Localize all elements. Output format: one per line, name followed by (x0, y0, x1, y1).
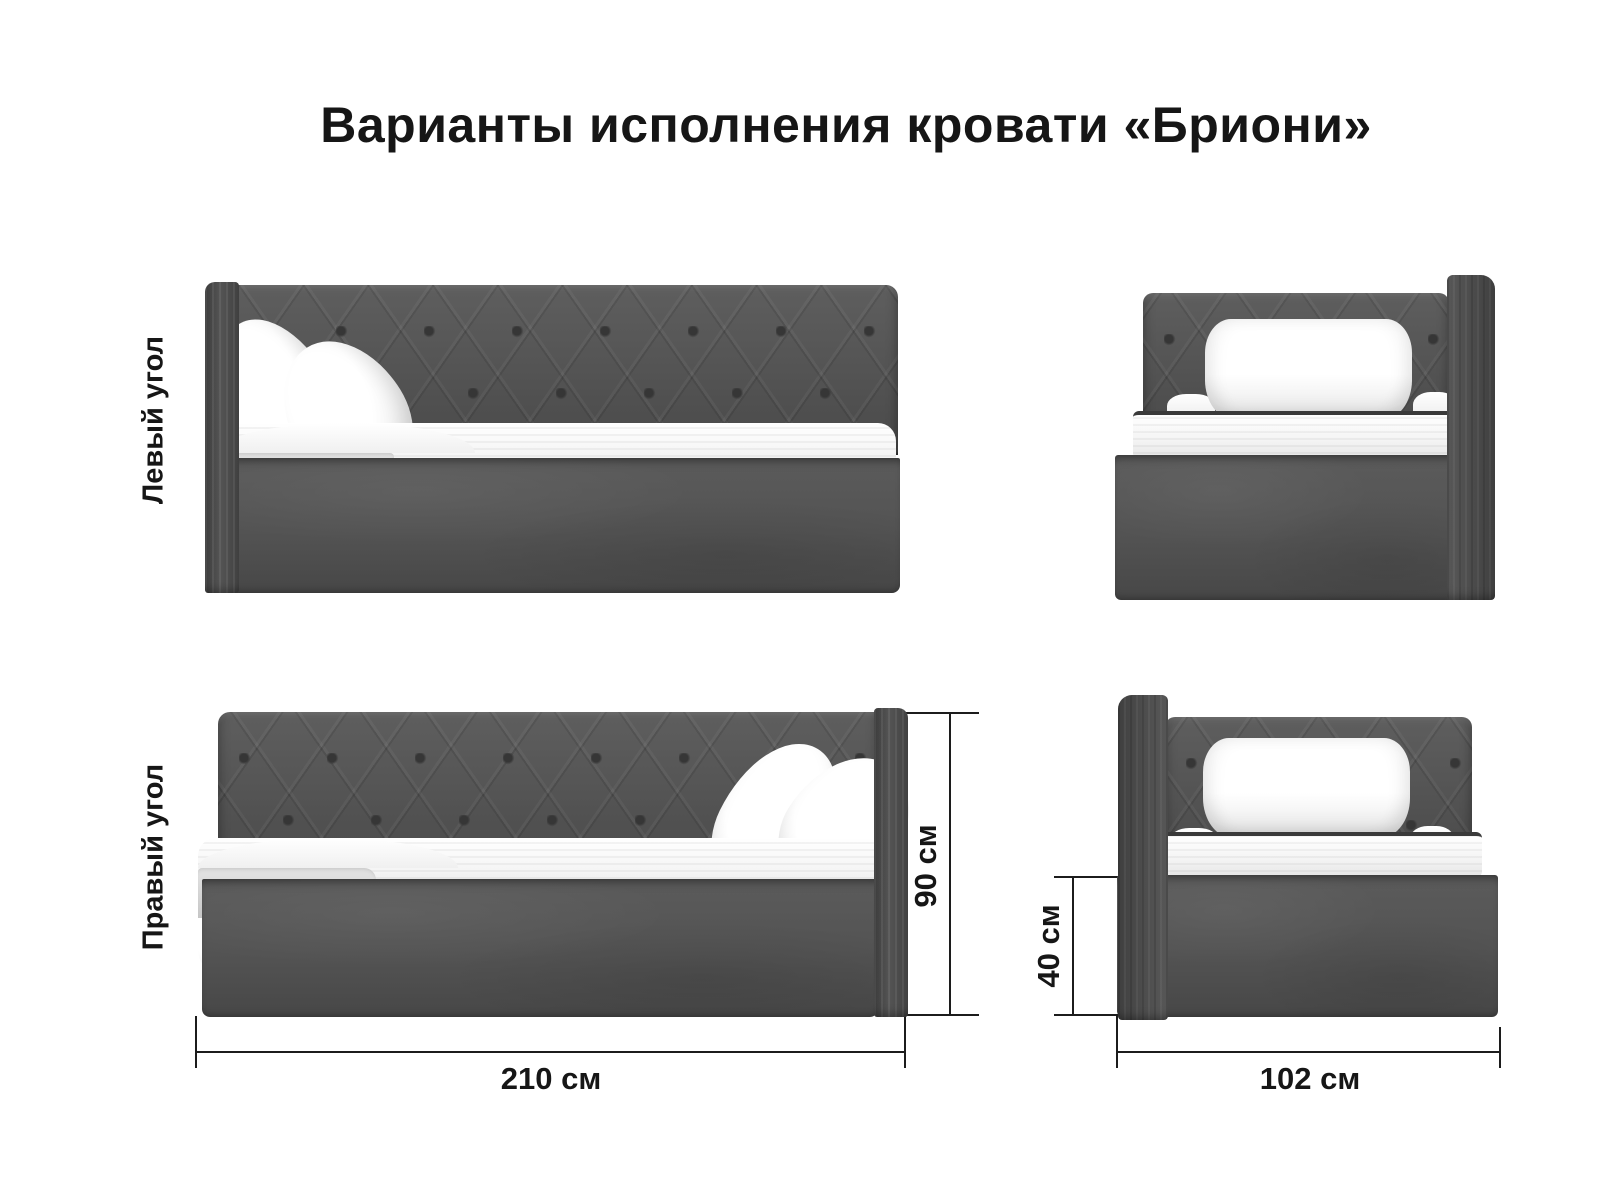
pillow (1205, 319, 1412, 420)
dimension-base-height-tick-top (1054, 876, 1118, 878)
page-title: Варианты исполнения кровати «Бриони» (92, 96, 1600, 154)
storage-base (202, 879, 878, 1017)
dimension-base-height-label: 40 см (1031, 904, 1067, 987)
product-diagram-canvas: Варианты исполнения кровати «Бриони» Лев… (0, 0, 1600, 1200)
dimension-base-height-line (1072, 877, 1074, 1016)
variant-label-left-corner: Левый угол (138, 336, 171, 504)
dimension-length-tick-right (904, 1016, 906, 1068)
variant-label-right-corner: Правый угол (138, 764, 171, 950)
corner-post (874, 708, 908, 1017)
corner-post (205, 282, 239, 593)
dimension-height-tick-top (905, 712, 979, 714)
dimension-width-tick-left (1116, 1016, 1118, 1068)
bed-view-left-corner-front (1095, 262, 1497, 600)
mattress (1133, 832, 1482, 879)
side-wing (1447, 275, 1495, 600)
dimension-width-label: 102 см (1260, 1061, 1361, 1097)
storage-base (1115, 455, 1483, 600)
dimension-height-label: 90 см (908, 824, 944, 907)
duvet-fold (217, 423, 475, 453)
bed-view-left-corner-side (205, 281, 907, 593)
dimension-length-tick-left (195, 1016, 197, 1068)
bed-view-right-corner-side (196, 700, 908, 1017)
dimension-length-label: 210 см (501, 1061, 602, 1097)
dimension-height-line (949, 713, 951, 1016)
pillow (1203, 738, 1410, 838)
storage-base (1117, 875, 1498, 1017)
side-wing (1118, 695, 1168, 1020)
dimension-height-tick-bottom (905, 1014, 979, 1016)
mattress (1133, 411, 1475, 461)
dimension-width-tick-right (1499, 1027, 1501, 1068)
duvet-fold (198, 838, 458, 868)
dimension-width-line (1117, 1051, 1501, 1053)
storage-base (227, 458, 900, 593)
dimension-length-line (196, 1051, 906, 1053)
dimension-base-height-tick-bottom (1054, 1014, 1118, 1016)
bed-view-right-corner-front (1110, 680, 1505, 1020)
